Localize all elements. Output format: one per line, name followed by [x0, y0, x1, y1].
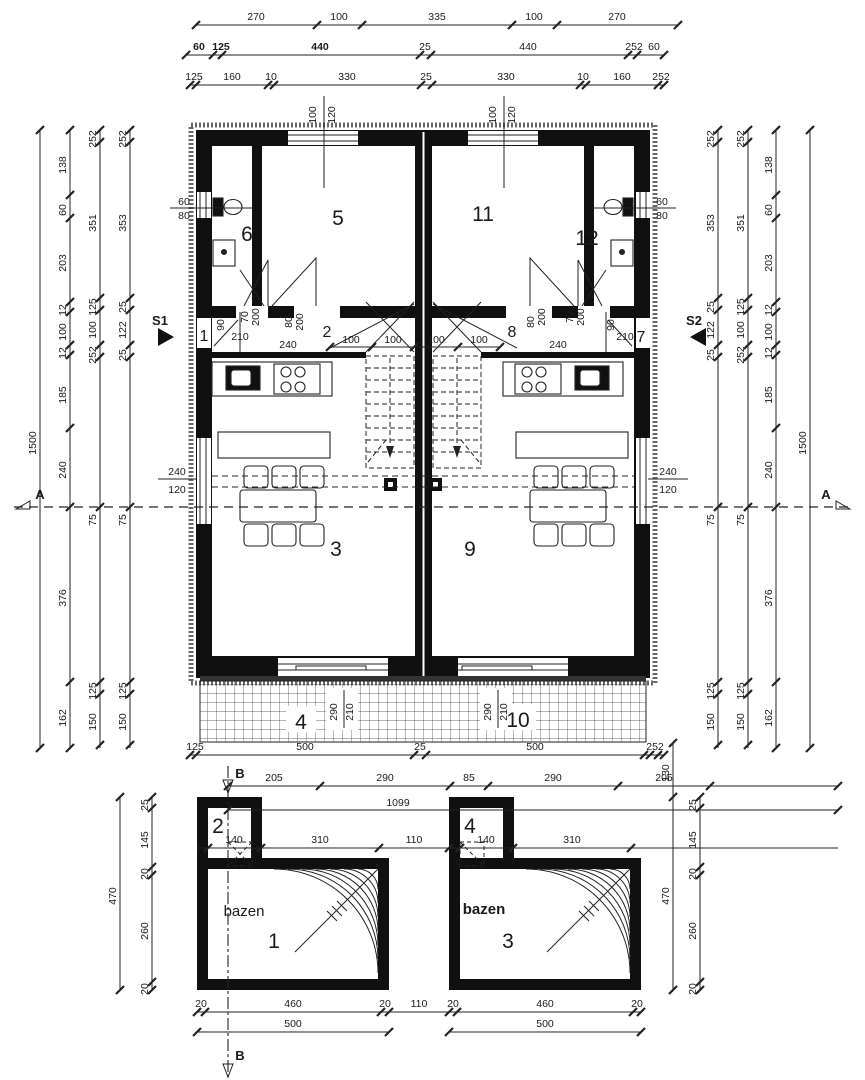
- window-dim-label: 240: [168, 466, 186, 478]
- dim-label: 122: [705, 321, 717, 339]
- dim-label: 122: [117, 321, 129, 339]
- room-number-7: 7: [637, 329, 646, 346]
- dim-label: 460: [284, 998, 302, 1010]
- dim-label: 252: [735, 346, 747, 364]
- dim-label: 353: [705, 214, 717, 232]
- dim-label: 12: [57, 347, 69, 359]
- dim-label: 100: [87, 321, 99, 339]
- dim-label: 12: [763, 347, 775, 359]
- section-label-a-right: A: [821, 487, 831, 502]
- section-label-a-left: A: [35, 487, 45, 502]
- room-number-2: 2: [323, 324, 332, 341]
- dim-label: 252: [117, 130, 129, 148]
- dim-label: 1500: [797, 431, 809, 455]
- dim-label: 20: [687, 983, 699, 995]
- dim-label: 290: [544, 772, 562, 784]
- dim-label: 500: [284, 1018, 302, 1030]
- dining-table-left: [240, 490, 316, 522]
- dim-label: 12: [57, 304, 69, 316]
- dim-label: 75: [87, 514, 99, 526]
- door-dim-label: 210: [616, 331, 634, 343]
- sofa-right: [516, 432, 628, 458]
- door-dim-label: 200: [575, 308, 587, 326]
- dim-label: 100: [57, 323, 69, 341]
- dim-label: 100: [427, 334, 445, 346]
- dim-label: 100: [470, 334, 488, 346]
- section-label-s1: S1: [152, 313, 168, 328]
- kitchen-wall-right: [481, 352, 634, 358]
- pool-1-number: 1: [268, 930, 280, 953]
- dim-label: 440: [311, 41, 329, 53]
- dim-label: 130: [660, 764, 672, 782]
- window-dim-label: 60: [656, 196, 668, 208]
- dim-label: 260: [139, 922, 151, 940]
- dim-label: 252: [652, 71, 670, 83]
- dim-label: 145: [687, 831, 699, 849]
- room-number-11: 11: [472, 203, 494, 226]
- dim-label: 205: [265, 772, 283, 784]
- dim-label: 252: [625, 41, 643, 53]
- dim-label: 353: [117, 214, 129, 232]
- door-dim-label: 240: [549, 339, 567, 351]
- dim-label: 25: [705, 349, 717, 361]
- dim-label: 440: [519, 41, 537, 53]
- dim-label: 150: [87, 713, 99, 731]
- dim-label: 20: [379, 998, 391, 1010]
- dim-label: 290: [376, 772, 394, 784]
- dim-label: 10: [577, 71, 589, 83]
- pool-1-bazen-label: bazen: [224, 903, 265, 920]
- dim-label: 335: [428, 11, 446, 23]
- wall-openings: [197, 131, 650, 676]
- pools: [197, 797, 641, 990]
- dim-label: 125: [185, 71, 203, 83]
- sofa-left: [218, 432, 330, 458]
- dim-label: 25: [687, 799, 699, 811]
- dim-label: 376: [57, 589, 69, 607]
- dim-label: 125: [735, 682, 747, 700]
- door-dim-label: 90: [605, 319, 617, 331]
- dim-label: 150: [705, 713, 717, 731]
- dim-label: 330: [497, 71, 515, 83]
- dim-label: 185: [763, 386, 775, 404]
- section-marker-a-right-arrow: [836, 501, 850, 509]
- dim-label: 270: [608, 11, 626, 23]
- dim-label: 140: [477, 834, 495, 846]
- dim-label: 1099: [386, 797, 410, 809]
- section-label-s2: S2: [686, 313, 702, 328]
- dim-label: 500: [296, 741, 314, 753]
- dim-label: 310: [311, 834, 329, 846]
- dim-label: 500: [536, 1018, 554, 1030]
- dim-label: 60: [648, 41, 660, 53]
- terrace: [200, 676, 646, 742]
- dim-label: 125: [705, 682, 717, 700]
- dim-label: 351: [87, 214, 99, 232]
- wc-right: [623, 198, 633, 216]
- dim-label: 60: [193, 41, 205, 53]
- dim-label: 460: [536, 998, 554, 1010]
- dim-label: 20: [631, 998, 643, 1010]
- dim-label: 240: [763, 461, 775, 479]
- dim-label: 20: [195, 998, 207, 1010]
- window-dim-label: 80: [656, 210, 668, 222]
- door-dim-label: 200: [294, 313, 306, 331]
- pool-3-number: 3: [502, 930, 514, 953]
- dim-label: 470: [107, 887, 119, 905]
- pool-room-right-number: 4: [464, 815, 476, 838]
- dim-label: 125: [87, 682, 99, 700]
- dim-label: 1500: [27, 431, 39, 455]
- dim-label: 25: [414, 741, 426, 753]
- wc-left: [213, 198, 223, 216]
- dim-label: 110: [406, 834, 423, 846]
- window-dim-label: 120: [659, 484, 677, 496]
- dim-label: 100: [735, 321, 747, 339]
- dining-table-right: [530, 490, 606, 522]
- terrace-tile-hatch: [200, 681, 646, 742]
- dim-label: 20: [687, 868, 699, 880]
- dim-label: 252: [87, 130, 99, 148]
- window-dim-label: 100: [307, 106, 319, 124]
- section-marker-s1-arrow: [158, 328, 174, 346]
- dim-label: 100: [763, 323, 775, 341]
- dim-label: 125: [87, 298, 99, 316]
- dim-label: 75: [117, 514, 129, 526]
- party-wall-right-leaf: [424, 130, 432, 678]
- pool-room-left-number: 2: [212, 815, 224, 838]
- dim-label: 162: [57, 709, 69, 727]
- dim-label: 100: [330, 11, 348, 23]
- dim-label: 203: [57, 254, 69, 272]
- dim-label: 100: [384, 334, 402, 346]
- section-label-b-bottom: B: [235, 1048, 244, 1063]
- door-dim-label: 200: [250, 308, 262, 326]
- floor-plan-canvas: 270 100 335 100 270 60 125 440 25 440 25…: [0, 0, 865, 1080]
- room-number-9: 9: [464, 538, 476, 561]
- dim-label: 20: [139, 983, 151, 995]
- section-marker-s2-arrow: [690, 328, 706, 346]
- terrace-door-label: 290: [328, 703, 340, 721]
- dim-label: 10: [265, 71, 277, 83]
- window-dim-label: 60: [178, 196, 190, 208]
- floor-plan-drawing: 270 100 335 100 270 60 125 440 25 440 25…: [0, 0, 865, 1080]
- door-dim-label: 240: [279, 339, 297, 351]
- section-marker-a-left-arrow: [16, 501, 30, 509]
- room-number-5: 5: [332, 207, 344, 230]
- dim-label: 160: [613, 71, 631, 83]
- dim-label: 75: [705, 514, 717, 526]
- dim-label: 20: [139, 868, 151, 880]
- dim-label: 260: [687, 922, 699, 940]
- dim-label: 125: [212, 41, 230, 53]
- dim-label: 25: [420, 71, 432, 83]
- dim-label: 145: [139, 831, 151, 849]
- dim-label: 85: [463, 772, 475, 784]
- dim-label: 162: [763, 709, 775, 727]
- dim-label: 125: [186, 741, 204, 753]
- dim-label: 203: [763, 254, 775, 272]
- window-dim-label: 120: [326, 106, 338, 124]
- dim-label: 376: [763, 589, 775, 607]
- room-number-12: 12: [575, 227, 598, 250]
- dim-label: 25: [705, 301, 717, 313]
- dimension-ticks: [36, 21, 842, 1036]
- pool-3-bazen-label: bazen: [463, 901, 506, 918]
- window-dim-label: 80: [178, 210, 190, 222]
- door-dim-label: 90: [215, 319, 227, 331]
- room-number-3: 3: [330, 538, 342, 561]
- door-dim-label: 200: [536, 308, 548, 326]
- window-dim-label: 240: [659, 466, 677, 478]
- dim-label: 252: [646, 741, 664, 753]
- dim-label: 330: [338, 71, 356, 83]
- dim-lines-pool-bottom: [197, 1012, 641, 1032]
- dim-label: 75: [735, 514, 747, 526]
- terrace-door-label: 210: [344, 703, 356, 721]
- dim-label: 252: [705, 130, 717, 148]
- door-dim-label: 210: [231, 331, 249, 343]
- dim-label: 140: [225, 834, 243, 846]
- dim-label: 125: [117, 682, 129, 700]
- kitchen-wall-left: [212, 352, 366, 358]
- dim-label: 252: [735, 130, 747, 148]
- dim-label: 25: [419, 41, 431, 53]
- dim-label: 60: [763, 204, 775, 216]
- room-number-4: 4: [295, 711, 307, 734]
- dim-label: 310: [563, 834, 581, 846]
- room-number-8: 8: [508, 324, 517, 341]
- dim-label: 252: [87, 346, 99, 364]
- dim-label: 270: [247, 11, 265, 23]
- dim-label: 12: [763, 304, 775, 316]
- dim-label: 60: [57, 204, 69, 216]
- window-dim-label: 120: [506, 106, 518, 124]
- section-label-b-top: B: [235, 766, 244, 781]
- dim-label: 160: [223, 71, 241, 83]
- terrace-door-label: 290: [482, 703, 494, 721]
- room-number-1: 1: [200, 328, 209, 345]
- dim-label: 110: [411, 998, 428, 1010]
- dim-label: 100: [342, 334, 360, 346]
- dim-label: 138: [763, 156, 775, 174]
- dim-label: 25: [117, 349, 129, 361]
- terrace-edge-band: [200, 676, 646, 681]
- dim-label: 20: [447, 998, 459, 1010]
- dim-label: 150: [735, 713, 747, 731]
- dim-label: 100: [525, 11, 543, 23]
- dim-label: 470: [660, 887, 672, 905]
- window-dim-label: 100: [487, 106, 499, 124]
- dim-label: 25: [117, 301, 129, 313]
- dim-label: 138: [57, 156, 69, 174]
- window-dim-label: 120: [168, 484, 186, 496]
- dim-label: 500: [526, 741, 544, 753]
- dim-label: 351: [735, 214, 747, 232]
- dim-label: 125: [735, 298, 747, 316]
- party-wall-left-leaf: [415, 130, 423, 678]
- dimension-lines: [40, 25, 838, 1032]
- dim-label: 185: [57, 386, 69, 404]
- room-number-6: 6: [241, 223, 253, 246]
- dim-label: 240: [57, 461, 69, 479]
- room-number-10: 10: [506, 709, 529, 732]
- dim-label: 150: [117, 713, 129, 731]
- dim-label: 25: [139, 799, 151, 811]
